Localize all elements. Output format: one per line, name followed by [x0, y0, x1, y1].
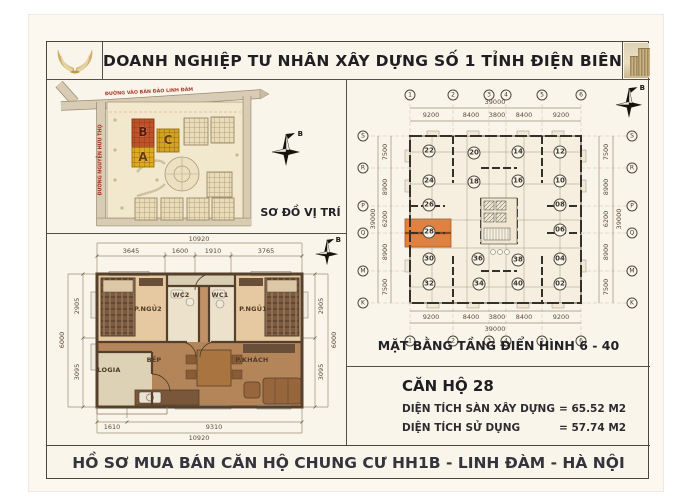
grid-row-bubble: S [358, 131, 369, 142]
dim-v: 8900 [603, 179, 610, 196]
dim-bottom-1: 1610 [104, 424, 121, 431]
header-bar: DOANH NGHIỆP TƯ NHÂN XÂY DỰNG SỐ 1 TỈNH … [47, 42, 650, 80]
dim-v-total: 39000 [616, 209, 623, 230]
unit-bubble: 10 [554, 175, 567, 188]
unit-bubble: 02 [554, 278, 567, 291]
dim-h-total: 39000 [485, 326, 506, 333]
unit-info-value: = 65.52 M2 [559, 403, 626, 415]
dim-v: 8900 [603, 244, 610, 261]
grid-col-bubble: 6 [576, 90, 587, 101]
footer-title: HỒ SƠ MUA BÁN CĂN HỘ CHUNG CƯ HH1B - LIN… [47, 445, 650, 480]
unit-bubble: 24 [423, 175, 436, 188]
dim-v: 7500 [603, 144, 610, 161]
unit-bubble: 38 [512, 254, 525, 267]
unit-bubble: 32 [423, 278, 436, 291]
room-label-loggia: LOGIA [97, 367, 120, 374]
dim-right-2: 3095 [318, 364, 325, 381]
block-b-label: B [138, 126, 147, 138]
compass-north-label: B [298, 130, 303, 138]
unit-bubble: 14 [512, 146, 525, 159]
dim-right-total: 6000 [331, 332, 338, 349]
dim-h: 8400 [516, 314, 533, 321]
unit-bubble: 34 [473, 278, 486, 291]
logo-cell [47, 42, 103, 79]
block-c-label: C [164, 134, 173, 146]
room-label-kitchen: BẾP [147, 357, 162, 364]
unit-bubble: 06 [554, 224, 567, 237]
grid-row-bubble: Q [627, 228, 638, 239]
unit-info-label: DIỆN TÍCH SỬ DỤNG [402, 422, 520, 434]
dim-h: 9200 [553, 314, 570, 321]
apartment-plan-section: 10920 3645 1600 1910 3765 2905 3095 6000… [47, 234, 347, 445]
dim-h: 9200 [423, 112, 440, 119]
dim-h: 8400 [463, 314, 480, 321]
unit-info-section: CĂN HỘ 28 DIỆN TÍCH SÀN XÂY DỰNG = 65.52… [347, 367, 650, 445]
unit-bubble: 04 [554, 253, 567, 266]
scanned-page: DOANH NGHIỆP TƯ NHÂN XÂY DỰNG SỐ 1 TỈNH … [28, 14, 664, 492]
dim-top-1: 3645 [123, 248, 140, 255]
grid-col-bubble: 1 [405, 90, 416, 101]
document-frame: DOANH NGHIỆP TƯ NHÂN XÂY DỰNG SỐ 1 TỈNH … [46, 41, 649, 479]
grid-row-bubble: M [627, 266, 638, 277]
dim-bottom-2: 9310 [206, 424, 223, 431]
dim-v: 7500 [603, 279, 610, 296]
dim-v: 7500 [382, 144, 389, 161]
unit-bubble: 40 [512, 278, 525, 291]
compass-north-label: B [640, 84, 645, 92]
dim-top-total: 10920 [189, 236, 210, 243]
grid-row-bubble: R [358, 163, 369, 174]
grid-col-bubble: 5 [537, 90, 548, 101]
site-map-caption: SƠ ĐỒ VỊ TRÍ [253, 206, 348, 219]
dim-h: 9200 [553, 112, 570, 119]
unit-bubble: 30 [423, 253, 436, 266]
block-a-label: A [138, 151, 147, 163]
building-photo [622, 42, 650, 79]
unit-bubble: 22 [423, 145, 436, 158]
dim-top-4: 3765 [258, 248, 275, 255]
unit-info-value: = 57.74 M2 [559, 422, 626, 434]
compass-icon: B [271, 132, 301, 168]
unit-bubble-highlighted: 28 [423, 226, 436, 239]
room-label-bedroom1: P.NGỦ1 [239, 306, 267, 313]
dim-v: 8900 [382, 244, 389, 261]
wings-logo-icon [52, 46, 98, 76]
compass-icon: B [315, 238, 339, 267]
grid-row-bubble: S [627, 131, 638, 142]
dim-bottom-total: 10920 [189, 435, 210, 442]
road-label-left: ĐƯỜNG NGUYỄN HỮU THỌ [100, 124, 105, 195]
grid-row-bubble: R [627, 163, 638, 174]
grid-col-bubble: 2 [448, 90, 459, 101]
dim-v: 7500 [382, 279, 389, 296]
page-title: DOANH NGHIỆP TƯ NHÂN XÂY DỰNG SỐ 1 TỈNH … [103, 42, 622, 79]
dim-v: 8900 [382, 179, 389, 196]
apartment-floor-plan-drawing [47, 234, 347, 445]
dim-left-1: 2905 [74, 298, 81, 315]
dim-h: 8400 [463, 112, 480, 119]
room-label-wc2: WC2 [172, 292, 189, 299]
grid-row-bubble: P [358, 201, 369, 212]
room-label-wc1: WC1 [211, 292, 228, 299]
building-plan-section: 1 2 3 4 5 6 1 2 3 4 5 6 S R P Q M K S R … [347, 80, 650, 367]
unit-bubble: 36 [472, 253, 485, 266]
unit-bubble: 08 [554, 199, 567, 212]
dim-right-1: 2905 [318, 298, 325, 315]
scanned-floorplan-document: { "header": { "title": "DOANH NGHIỆP TƯ … [0, 0, 690, 502]
site-map-section: ĐƯỜNG VÀO BÁN ĐẢO LINH ĐÀM ĐƯỜNG NGUYỄN … [47, 80, 347, 234]
unit-bubble: 18 [468, 176, 481, 189]
room-label-bedroom2: P.NGỦ2 [134, 306, 162, 313]
dim-top-3: 1910 [205, 248, 222, 255]
dim-h: 3800 [489, 112, 506, 119]
compass-icon: B [615, 86, 643, 120]
dim-v: 6200 [603, 211, 610, 228]
dim-v: 6200 [382, 211, 389, 228]
left-column: ĐƯỜNG VÀO BÁN ĐẢO LINH ĐÀM ĐƯỜNG NGUYỄN … [47, 80, 347, 445]
dim-left-total: 6000 [59, 332, 66, 349]
dim-h: 3800 [489, 314, 506, 321]
grid-row-bubble: K [627, 298, 638, 309]
dim-h: 9200 [423, 314, 440, 321]
dim-h: 8400 [516, 112, 533, 119]
unit-bubble: 12 [554, 146, 567, 159]
room-label-living: P.KHÁCH [235, 357, 268, 364]
compass-north-label: B [336, 236, 341, 244]
grid-row-bubble: M [358, 266, 369, 277]
unit-bubble: 16 [512, 175, 525, 188]
dim-h-total: 39000 [485, 99, 506, 106]
grid-row-bubble: Q [358, 228, 369, 239]
unit-info-label: DIỆN TÍCH SÀN XÂY DỰNG [402, 403, 555, 415]
building-plan-caption: MẶT BẰNG TẦNG ĐIỂN HÌNH 6 - 40 [347, 338, 650, 353]
right-column: 1 2 3 4 5 6 1 2 3 4 5 6 S R P Q M K S R … [347, 80, 650, 445]
dim-v-total: 39000 [370, 209, 377, 230]
unit-bubble: 26 [423, 199, 436, 212]
grid-row-bubble: P [627, 201, 638, 212]
unit-bubble: 20 [468, 147, 481, 160]
dim-top-2: 1600 [172, 248, 189, 255]
dim-left-2: 3095 [74, 364, 81, 381]
grid-row-bubble: K [358, 298, 369, 309]
unit-info-title: CĂN HỘ 28 [402, 377, 494, 395]
